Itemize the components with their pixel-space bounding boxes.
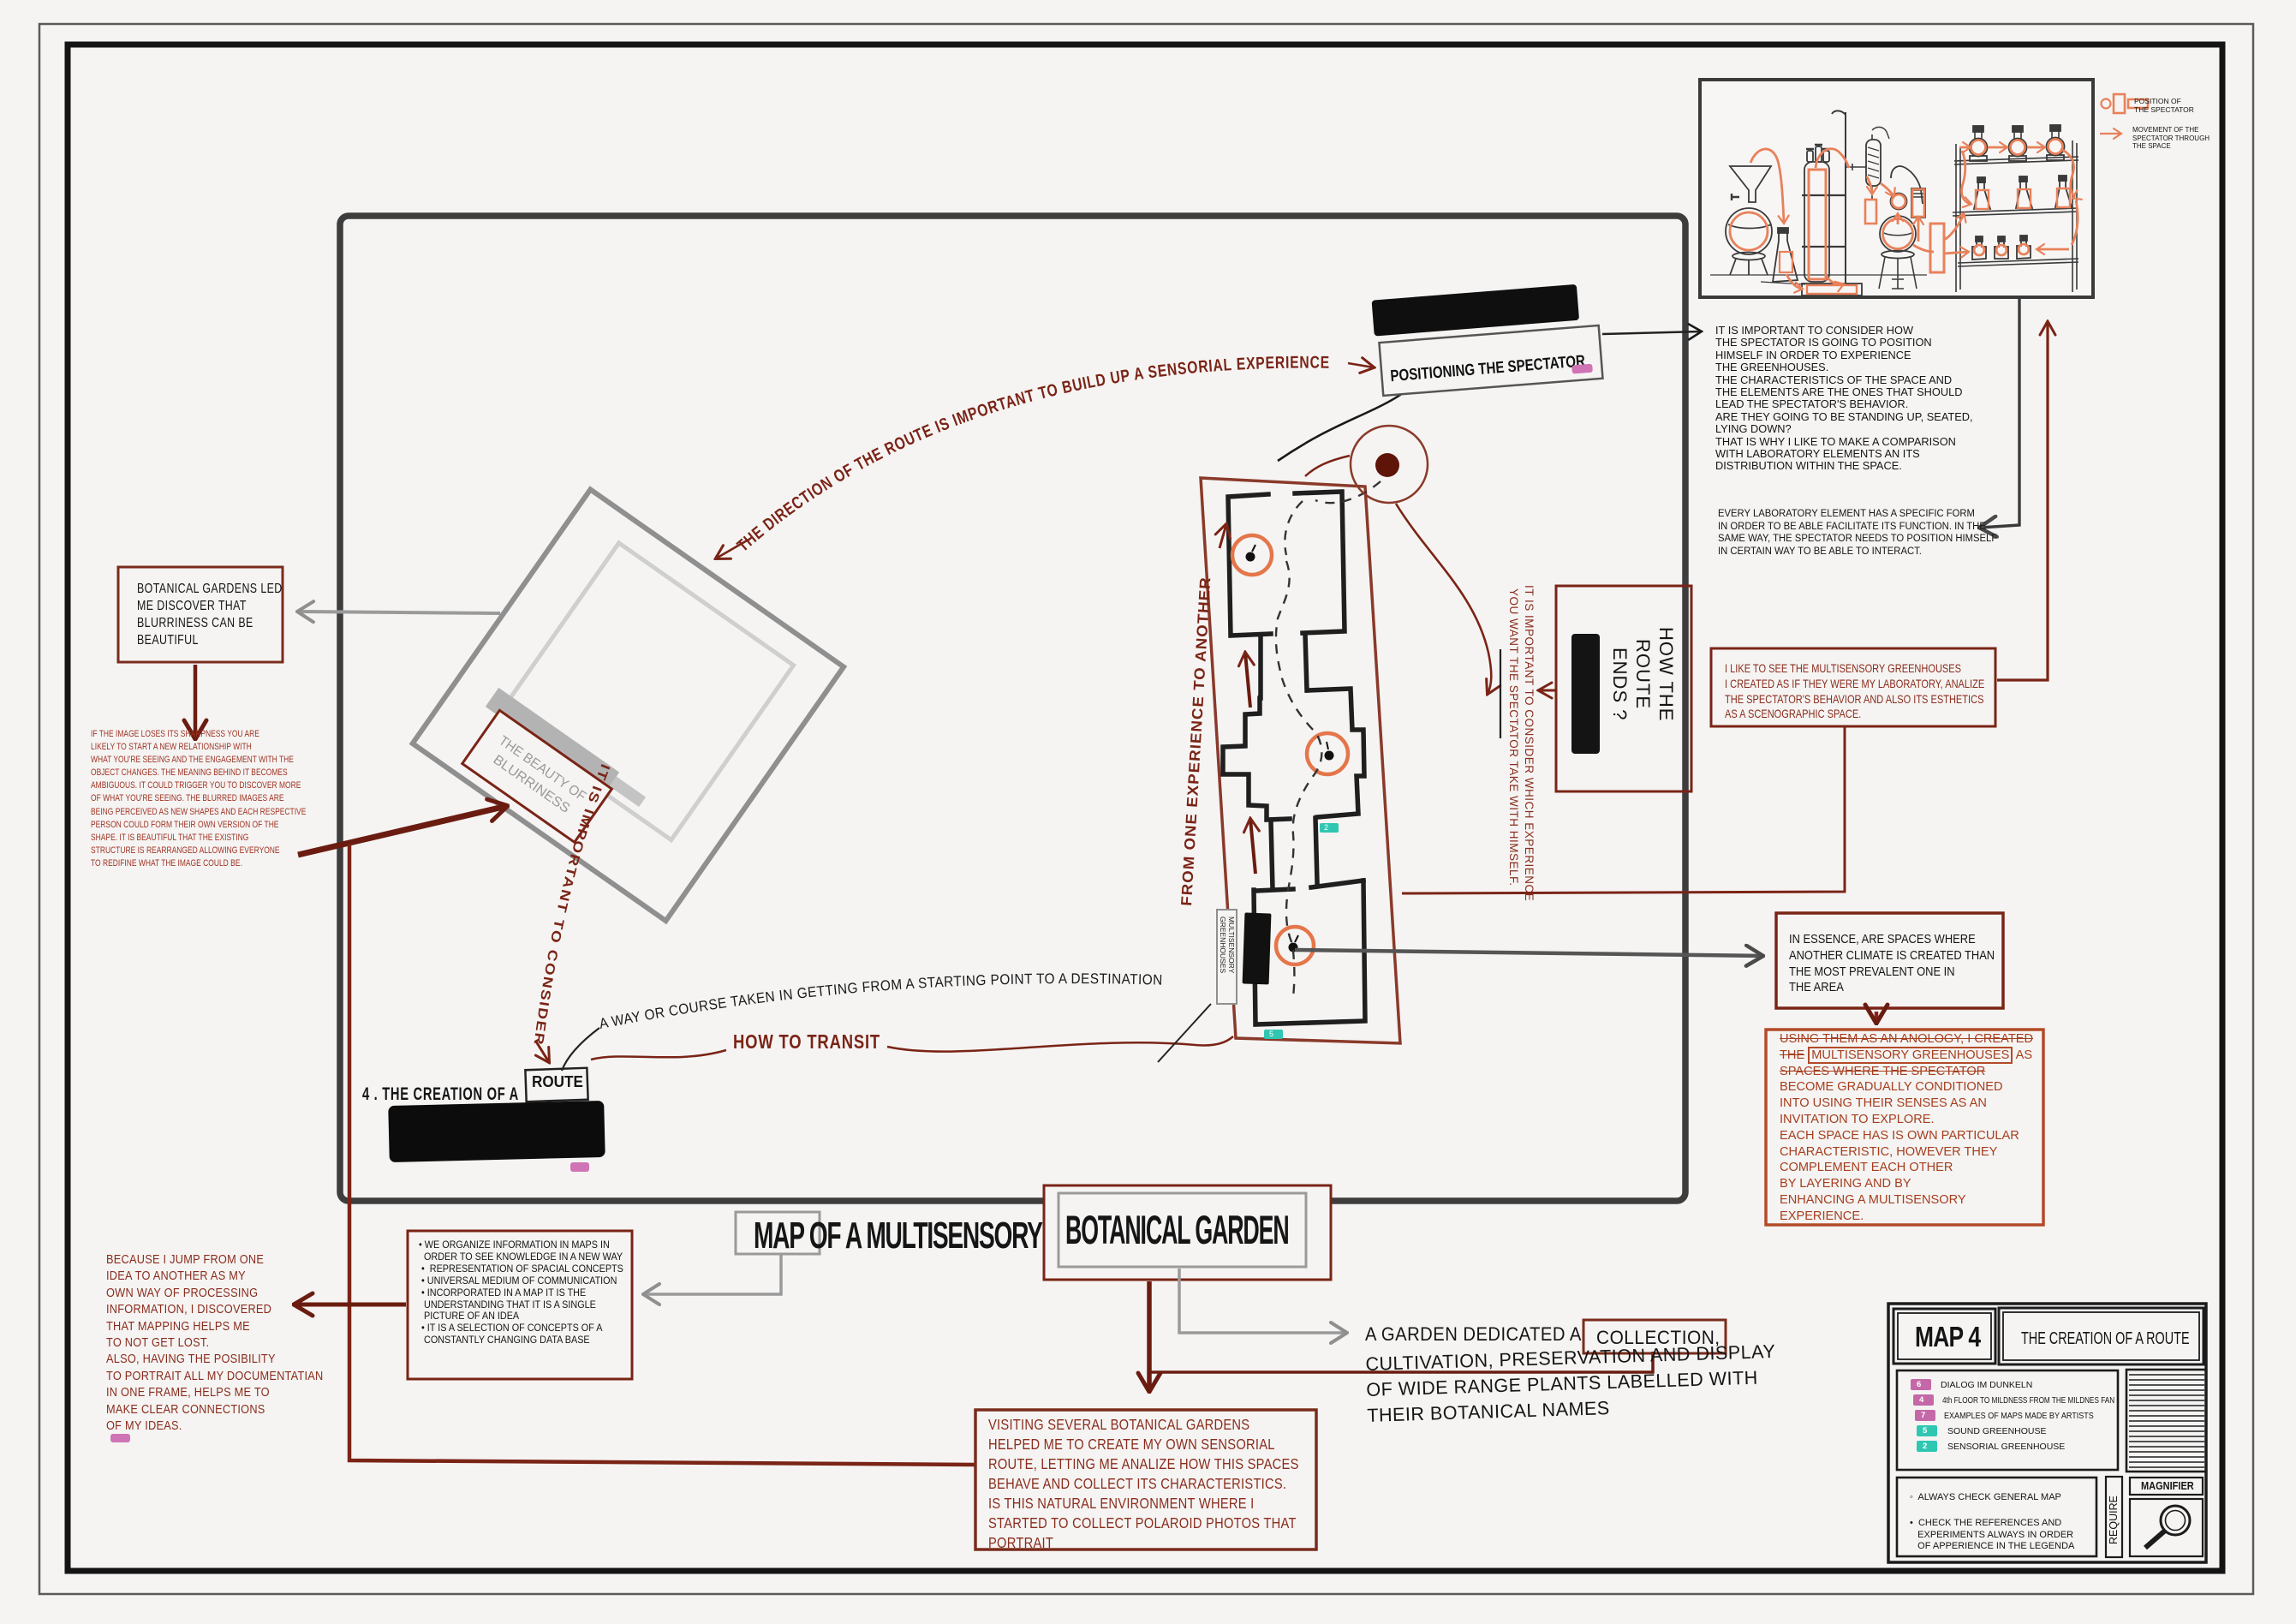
svg-text:HOW TO TRANSIT: HOW TO TRANSIT <box>733 1030 880 1053</box>
svg-text:ROUTE: ROUTE <box>1632 639 1654 709</box>
svg-text:HOW THE: HOW THE <box>1655 627 1677 721</box>
svg-text:IT IS IMPORTANT TO CONSIDER WH: IT IS IMPORTANT TO CONSIDER WHICH EXPERI… <box>1523 585 1536 901</box>
svg-text:YOU WANT THE SPECTATOR TAKE WI: YOU WANT THE SPECTATOR TAKE WITH HIMSELF… <box>1507 588 1520 887</box>
svg-text:THE DIRECTION OF THE ROUTE IS: THE DIRECTION OF THE ROUTE IS IMPORTANT … <box>734 354 1330 556</box>
svg-text:ENDS ?: ENDS ? <box>1609 648 1631 720</box>
svg-text:FROM ONE EXPERIENCE TO ANOTHER: FROM ONE EXPERIENCE TO ANOTHER <box>1178 576 1214 907</box>
svg-text:A WAY OR COURSE TAKEN IN GETTI: A WAY OR COURSE TAKEN IN GETTING FROM A … <box>598 970 1163 1032</box>
